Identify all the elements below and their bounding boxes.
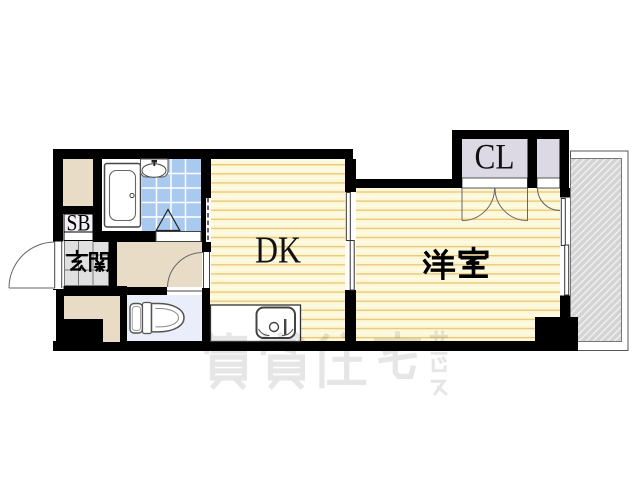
svg-text:CL: CL [475,137,515,177]
svg-text:DK: DK [255,230,301,272]
svg-text:SB: SB [67,211,91,236]
